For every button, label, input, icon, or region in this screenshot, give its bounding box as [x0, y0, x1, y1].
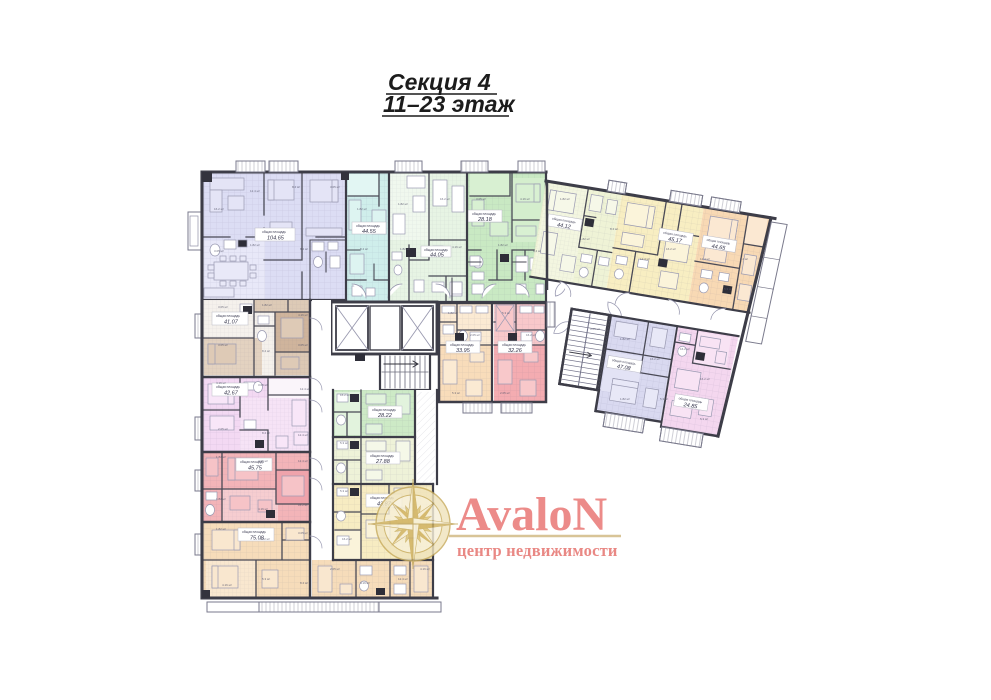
svg-text:16.2 м²: 16.2 м²	[340, 393, 350, 397]
svg-text:16.2 м²: 16.2 м²	[342, 537, 352, 541]
svg-text:104.65: 104.65	[267, 236, 285, 242]
svg-text:8.4 м²: 8.4 м²	[610, 227, 618, 231]
svg-text:3.05 м²: 3.05 м²	[298, 531, 308, 535]
svg-text:1.82 м²: 1.82 м²	[620, 337, 630, 341]
svg-text:общая площадь: общая площадь	[424, 248, 448, 252]
svg-text:27.88: 27.88	[375, 459, 391, 465]
svg-text:4.16 м²: 4.16 м²	[216, 381, 226, 385]
svg-text:AvaloN: AvaloN	[456, 488, 607, 541]
svg-text:12.4 м²: 12.4 м²	[298, 433, 308, 437]
svg-text:16.2 м²: 16.2 м²	[700, 377, 710, 381]
svg-text:16.2 м²: 16.2 м²	[298, 503, 308, 507]
svg-text:2.05 м²: 2.05 м²	[258, 459, 268, 463]
svg-text:45.75: 45.75	[248, 466, 263, 472]
svg-text:2.05 м²: 2.05 м²	[470, 333, 480, 337]
svg-text:общая площадь: общая площадь	[472, 212, 496, 216]
svg-text:3.05 м²: 3.05 м²	[298, 343, 308, 347]
svg-text:44.05: 44.05	[430, 253, 445, 259]
svg-text:1.82 м²: 1.82 м²	[216, 527, 226, 531]
svg-text:12.4 м²: 12.4 м²	[250, 189, 260, 193]
svg-text:общая площадь: общая площадь	[242, 530, 266, 534]
svg-text:32.26: 32.26	[508, 348, 523, 354]
svg-text:1.82 м²: 1.82 м²	[560, 197, 570, 201]
svg-text:1.82 м²: 1.82 м²	[260, 537, 270, 541]
svg-text:44.55: 44.55	[362, 229, 377, 235]
svg-text:1.82 м²: 1.82 м²	[216, 455, 226, 459]
svg-text:8.4 м²: 8.4 м²	[740, 257, 748, 261]
svg-text:1.82 м²: 1.82 м²	[250, 243, 260, 247]
svg-text:42.67: 42.67	[224, 391, 239, 397]
svg-text:16.2 м²: 16.2 м²	[214, 207, 224, 211]
svg-text:4.16 м²: 4.16 м²	[520, 197, 530, 201]
svg-text:2.05 м²: 2.05 м²	[500, 391, 510, 395]
svg-text:4.16 м²: 4.16 м²	[420, 567, 430, 571]
svg-text:5.3 м²: 5.3 м²	[700, 417, 708, 421]
svg-text:12.4 м²: 12.4 м²	[300, 387, 310, 391]
svg-text:8.4 м²: 8.4 м²	[360, 247, 368, 251]
svg-text:общая площадь: общая площадь	[216, 385, 240, 389]
svg-text:33.95: 33.95	[456, 348, 471, 354]
svg-text:1.82 м²: 1.82 м²	[448, 311, 458, 315]
svg-text:1.82 м²: 1.82 м²	[357, 207, 367, 211]
svg-text:1.82 м²: 1.82 м²	[498, 243, 508, 247]
svg-text:общая площадь: общая площадь	[356, 224, 380, 228]
svg-text:3.05 м²: 3.05 м²	[218, 343, 228, 347]
svg-text:общая площадь: общая площадь	[216, 314, 240, 318]
svg-text:1.82 м²: 1.82 м²	[398, 202, 408, 206]
svg-text:4.16 м²: 4.16 м²	[452, 245, 462, 249]
svg-text:12.4 м²: 12.4 м²	[398, 577, 408, 581]
svg-text:общая площадь: общая площадь	[502, 343, 526, 347]
svg-text:1.82 м²: 1.82 м²	[262, 303, 272, 307]
svg-text:5.3 м²: 5.3 м²	[262, 577, 270, 581]
svg-text:8.4 м²: 8.4 м²	[300, 581, 308, 585]
svg-text:8.4 м²: 8.4 м²	[262, 349, 270, 353]
svg-text:4.16 м²: 4.16 м²	[298, 313, 308, 317]
svg-text:8.4 м²: 8.4 м²	[533, 249, 541, 253]
svg-text:3.05 м²: 3.05 м²	[258, 383, 268, 387]
svg-text:2.05 м²: 2.05 м²	[330, 567, 340, 571]
svg-text:1.82 м²: 1.82 м²	[400, 247, 410, 251]
svg-text:5.3 м²: 5.3 м²	[340, 441, 348, 445]
svg-text:16.2 м²: 16.2 м²	[650, 357, 660, 361]
svg-text:5.3 м²: 5.3 м²	[502, 311, 510, 315]
svg-text:8.4 м²: 8.4 м²	[300, 247, 308, 251]
svg-text:16.2 м²: 16.2 м²	[526, 333, 536, 337]
svg-text:1.82 м²: 1.82 м²	[216, 497, 226, 501]
svg-text:11–23 этаж: 11–23 этаж	[383, 91, 516, 117]
svg-text:3.05 м²: 3.05 м²	[476, 197, 486, 201]
svg-text:общая площадь: общая площадь	[370, 454, 394, 458]
svg-text:3.05 м²: 3.05 м²	[330, 185, 340, 189]
svg-text:5.3 м²: 5.3 м²	[724, 287, 732, 291]
svg-text:28.18: 28.18	[477, 217, 493, 223]
svg-text:8.4 м²: 8.4 м²	[292, 185, 300, 189]
svg-text:4.16 м²: 4.16 м²	[258, 507, 268, 511]
svg-text:5.3 м²: 5.3 м²	[660, 397, 668, 401]
svg-text:12.4 м²: 12.4 м²	[640, 257, 650, 261]
svg-text:12.4 м²: 12.4 м²	[700, 257, 710, 261]
svg-text:4.16 м²: 4.16 м²	[360, 581, 370, 585]
svg-text:5.3 м²: 5.3 м²	[452, 391, 460, 395]
svg-text:28.22: 28.22	[377, 413, 392, 419]
svg-text:41.07: 41.07	[224, 320, 239, 326]
svg-text:3.05 м²: 3.05 м²	[218, 305, 228, 309]
svg-text:общая площадь: общая площадь	[450, 343, 474, 347]
svg-text:центр недвижимости: центр недвижимости	[457, 541, 618, 560]
svg-text:1.82 м²: 1.82 м²	[620, 397, 630, 401]
svg-text:16.2 м²: 16.2 м²	[440, 197, 450, 201]
svg-text:общая площадь: общая площадь	[372, 408, 396, 412]
svg-text:2.05 м²: 2.05 м²	[218, 427, 228, 431]
svg-text:5.3 м²: 5.3 м²	[340, 489, 348, 493]
svg-text:1.82 м²: 1.82 м²	[580, 237, 590, 241]
svg-text:12.4 м²: 12.4 м²	[298, 459, 308, 463]
svg-text:общая площадь: общая площадь	[262, 230, 286, 234]
svg-text:3.05 м²: 3.05 м²	[590, 327, 600, 331]
svg-text:16.2 м²: 16.2 м²	[680, 347, 690, 351]
svg-text:8.4 м²: 8.4 м²	[262, 431, 270, 435]
svg-text:16.2 м²: 16.2 м²	[666, 247, 676, 251]
svg-text:4.16 м²: 4.16 м²	[222, 583, 232, 587]
svg-text:3.05 м²: 3.05 м²	[214, 249, 224, 253]
